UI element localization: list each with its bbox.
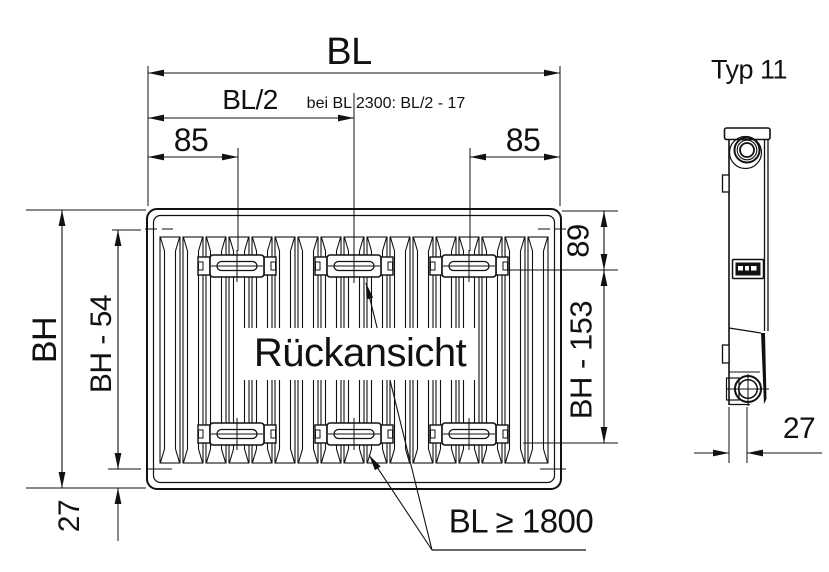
dim-bottom-offset-label: 27	[55, 500, 85, 532]
view-label: Rückansicht	[254, 333, 466, 373]
dim-depth-label: 27	[783, 414, 815, 444]
dim-bracket-offset-right-label: 85	[506, 124, 541, 156]
dim-half-length-note: bei BL 2300: BL/2 - 17	[307, 96, 466, 112]
dim-overall-height-label: BH	[28, 317, 62, 363]
middle-bracket-condition-label: BL ≥ 1800	[449, 505, 594, 538]
drawing-linework	[0, 0, 829, 572]
dim-overall-length-label: BL	[326, 33, 371, 71]
dim-inner-height-label: BH - 54	[87, 295, 117, 393]
type-label: Typ 11	[711, 57, 787, 84]
dim-bracket-span-label: BH - 153	[566, 301, 597, 419]
dim-half-length-label: BL/2	[222, 86, 278, 114]
dim-bracket-offset-left-label: 85	[174, 124, 209, 156]
radiator-technical-drawing: BL BL/2 bei BL 2300: BL/2 - 17 85 85 BH …	[0, 0, 829, 572]
dim-top-to-bracket-label: 89	[563, 224, 594, 257]
